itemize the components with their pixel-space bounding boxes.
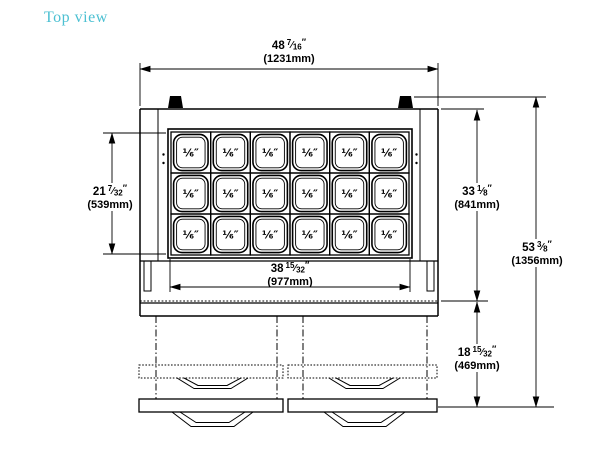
pan-cell: ⅙″: [290, 214, 330, 255]
pan-size-label: ⅙″: [262, 147, 278, 160]
pan-size-label: ⅙″: [222, 147, 238, 160]
left-knob: [168, 96, 183, 108]
pan-size-label: ⅙″: [183, 229, 199, 242]
pan-cell: ⅙″: [171, 214, 211, 255]
upper-drawer-handles: [177, 378, 400, 389]
pan-cell: ⅙″: [211, 132, 251, 173]
pan-size-label: ⅙″: [341, 188, 357, 201]
pan-size-label: ⅙″: [302, 229, 318, 242]
pan-cell: ⅙″: [369, 214, 409, 255]
lower-drawer-front-right: [288, 399, 437, 412]
left-rail-slot: [144, 261, 151, 291]
pan-cell: ⅙″: [250, 173, 290, 214]
pan-cell: ⅙″: [211, 214, 251, 255]
right-knob: [398, 96, 413, 108]
dim-pan-area-width-label: 3815⁄32″ (977mm): [264, 260, 315, 288]
pan-cell: ⅙″: [369, 173, 409, 214]
pan-size-label: ⅙″: [222, 188, 238, 201]
pan-cell: ⅙″: [250, 132, 290, 173]
pan-size-label: ⅙″: [381, 188, 397, 201]
drawing-canvas: ⅙″⅙″⅙″⅙″⅙″⅙″⅙″⅙″⅙″⅙″⅙″⅙″⅙″⅙″⅙″⅙″⅙″⅙″: [0, 0, 613, 451]
pan-size-label: ⅙″: [183, 147, 199, 160]
pan-cell: ⅙″: [290, 173, 330, 214]
pan-size-label: ⅙″: [341, 147, 357, 160]
pan-size-label: ⅙″: [262, 229, 278, 242]
pan-size-label: ⅙″: [381, 229, 397, 242]
pan-size-label: ⅙″: [222, 229, 238, 242]
base-projection: [139, 316, 437, 427]
lower-drawer-front-left: [139, 399, 283, 412]
dim-overall-width-label: 487⁄16″ (1231mm): [260, 37, 317, 65]
pan-cell: ⅙″: [369, 132, 409, 173]
dim-base-depth-label: 1815⁄32″ (469mm): [451, 344, 502, 372]
lower-drawer-handles: [172, 412, 405, 427]
pan-grid: ⅙″⅙″⅙″⅙″⅙″⅙″⅙″⅙″⅙″⅙″⅙″⅙″⅙″⅙″⅙″⅙″⅙″⅙″: [162, 129, 417, 258]
pan-size-label: ⅙″: [381, 147, 397, 160]
pan-size-label: ⅙″: [183, 188, 199, 201]
pan-cell: ⅙″: [330, 214, 370, 255]
pan-cell: ⅙″: [290, 132, 330, 173]
dim-overall-depth-label: 533⁄8″ (1356mm): [508, 239, 565, 267]
dim-pan-area-depth-label: 217⁄32″ (539mm): [84, 183, 135, 211]
dim-body-depth-label: 331⁄8″ (841mm): [451, 183, 502, 211]
pan-size-label: ⅙″: [302, 188, 318, 201]
pan-cell: ⅙″: [171, 173, 211, 214]
pan-cell: ⅙″: [211, 173, 251, 214]
pan-cell: ⅙″: [171, 132, 211, 173]
right-rail-slot: [427, 261, 434, 291]
technical-drawing: Top view: [0, 0, 613, 451]
pan-size-label: ⅙″: [341, 229, 357, 242]
pan-size-label: ⅙″: [302, 147, 318, 160]
pan-cell: ⅙″: [250, 214, 290, 255]
pan-cell: ⅙″: [330, 173, 370, 214]
pan-cell: ⅙″: [330, 132, 370, 173]
upper-drawer-front-right: [288, 365, 437, 378]
rear-fittings: [168, 96, 413, 108]
pan-size-label: ⅙″: [262, 188, 278, 201]
upper-drawer-front-left: [139, 365, 283, 378]
